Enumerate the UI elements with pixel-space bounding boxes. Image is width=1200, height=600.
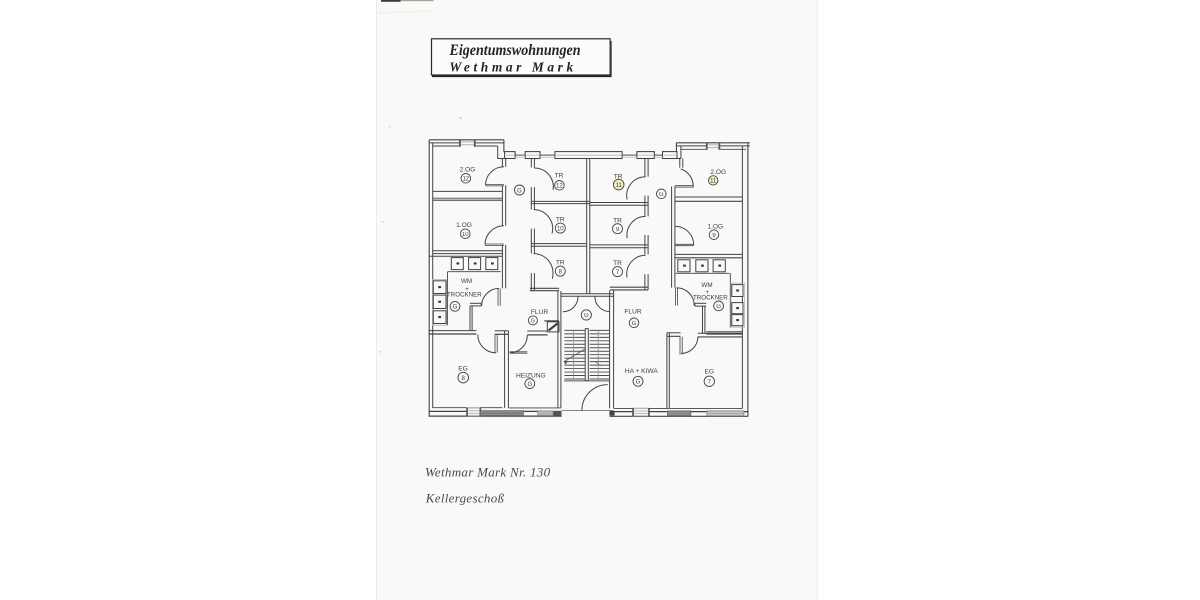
svg-text:FLUR: FLUR	[531, 309, 548, 316]
svg-text:Eigentumswohnungen: Eigentumswohnungen	[449, 41, 581, 59]
svg-text:12: 12	[556, 184, 563, 190]
svg-text:TR: TR	[555, 172, 564, 179]
svg-text:G: G	[527, 382, 532, 388]
svg-text:G: G	[531, 319, 536, 325]
svg-text:TROCKNER: TROCKNER	[693, 294, 728, 301]
svg-text:TR: TR	[613, 260, 622, 267]
svg-text:Kellergeschoß: Kellergeschoß	[425, 491, 505, 506]
svg-text:TR: TR	[556, 216, 565, 223]
svg-text:G: G	[584, 313, 589, 319]
svg-text:G: G	[716, 304, 721, 310]
svg-text:12: 12	[462, 177, 469, 183]
svg-text:G: G	[632, 321, 637, 327]
svg-text:G: G	[636, 380, 641, 386]
svg-text:WM: WM	[461, 278, 472, 285]
svg-text:TR: TR	[556, 259, 565, 266]
svg-text:FLUR: FLUR	[624, 308, 641, 315]
svg-text:G: G	[517, 188, 522, 194]
svg-text:1.OG: 1.OG	[707, 223, 723, 230]
svg-text:G: G	[453, 305, 458, 311]
svg-text:11: 11	[616, 183, 623, 189]
svg-text:Wethmar Mark: Wethmar Mark	[449, 59, 576, 74]
svg-text:TROCKNER: TROCKNER	[447, 292, 482, 299]
svg-text:G: G	[659, 192, 664, 198]
svg-text:EG: EG	[705, 369, 715, 376]
svg-text:2.OG: 2.OG	[460, 167, 476, 174]
svg-text:10: 10	[557, 226, 564, 232]
svg-text:HA + KIWA: HA + KIWA	[625, 368, 659, 375]
svg-text:EG: EG	[458, 366, 468, 373]
svg-text:1.OG: 1.OG	[456, 222, 472, 229]
svg-text:Wethmar Mark Nr. 130: Wethmar Mark Nr. 130	[425, 465, 551, 480]
svg-text:11: 11	[710, 179, 717, 185]
svg-text:WM: WM	[701, 282, 712, 289]
svg-text:10: 10	[462, 232, 469, 238]
svg-text:2.OG: 2.OG	[710, 169, 726, 176]
